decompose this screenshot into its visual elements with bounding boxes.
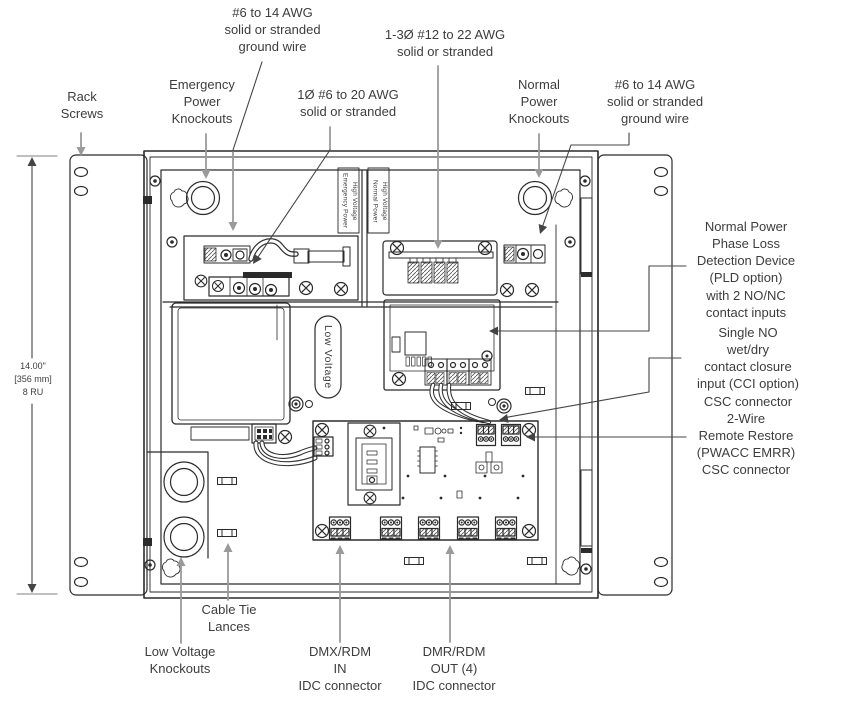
normal-power-terminal-block [408,258,458,283]
board-components [383,426,525,499]
idc-connector-dmx-out [496,517,517,540]
callout-lv-knockouts: Low Voltage Knockouts [118,643,242,677]
main-control-board [313,421,538,540]
low-voltage-wires [256,443,315,464]
bottom-knockout [164,517,204,557]
callout-cci: Single NO wet/dry contact closure input … [663,324,833,410]
idc-connector-dmx-in [330,517,351,540]
callout-cable-tie-lances: Cable Tie Lances [179,601,279,635]
idc-connector-dmx-out [458,517,479,540]
callout-normal-knockouts: Normal Power Knockouts [487,76,591,127]
callout-pld: Normal Power Phase Loss Detection Device… [663,218,829,321]
top-knockout-right [519,182,552,215]
normal-power-ground-lug [504,245,545,263]
washer-screw [289,397,303,411]
low-voltage-knockout-plate [147,452,208,558]
bottom-knockout [164,462,204,502]
washer-screw [497,399,511,413]
csc-connector-emrr [502,425,521,446]
dimension-text: 14.00" [356 mm] 8 RU [2,360,64,399]
rack-ear-right [598,155,672,595]
low-voltage-label: Low Voltage [315,316,341,398]
idc-connector-dmx-out [381,517,402,540]
callout-1phase-wire: 1Ø #6 to 20 AWG solid or stranded [266,86,430,120]
callout-emrr: 2-Wire Remote Restore (PWACC EMRR) CSC c… [663,410,829,479]
callout-ground-wire-left: #6 to 14 AWG solid or stranded ground wi… [205,4,340,55]
hv-emergency-label: High Voltage Emergency Power [338,169,359,233]
idc-connector-dmx-out [419,517,440,540]
wiring-diagram: Rack Screws Emergency Power Knockouts #6… [0,0,868,704]
hv-normal-label: High Voltage Normal Power [368,169,389,233]
rack-ear-left [70,155,147,595]
csc-connector-cci [477,425,496,446]
pld-terminal-strip [425,359,491,385]
emergency-power-compartment [163,236,558,307]
transformer [172,303,292,444]
top-knockout-left [187,182,220,215]
hv-section-divider [362,170,367,306]
callout-rack-screws: Rack Screws [38,88,126,122]
callout-dmx-rdm-in: DMX/RDM IN IDC connector [276,643,404,694]
callout-ground-wire-right: #6 to 14 AWG solid or stranded ground wi… [588,76,722,127]
relay-module [348,423,400,505]
callout-dmr-rdm-out: DMR/RDM OUT (4) IDC connector [390,643,518,694]
callout-3phase-wire: 1-3Ø #12 to 22 AWG solid or stranded [363,26,527,60]
pld-board [384,300,500,390]
normal-power-compartment [383,241,545,297]
callout-emergency-knockouts: Emergency Power Knockouts [150,76,254,127]
